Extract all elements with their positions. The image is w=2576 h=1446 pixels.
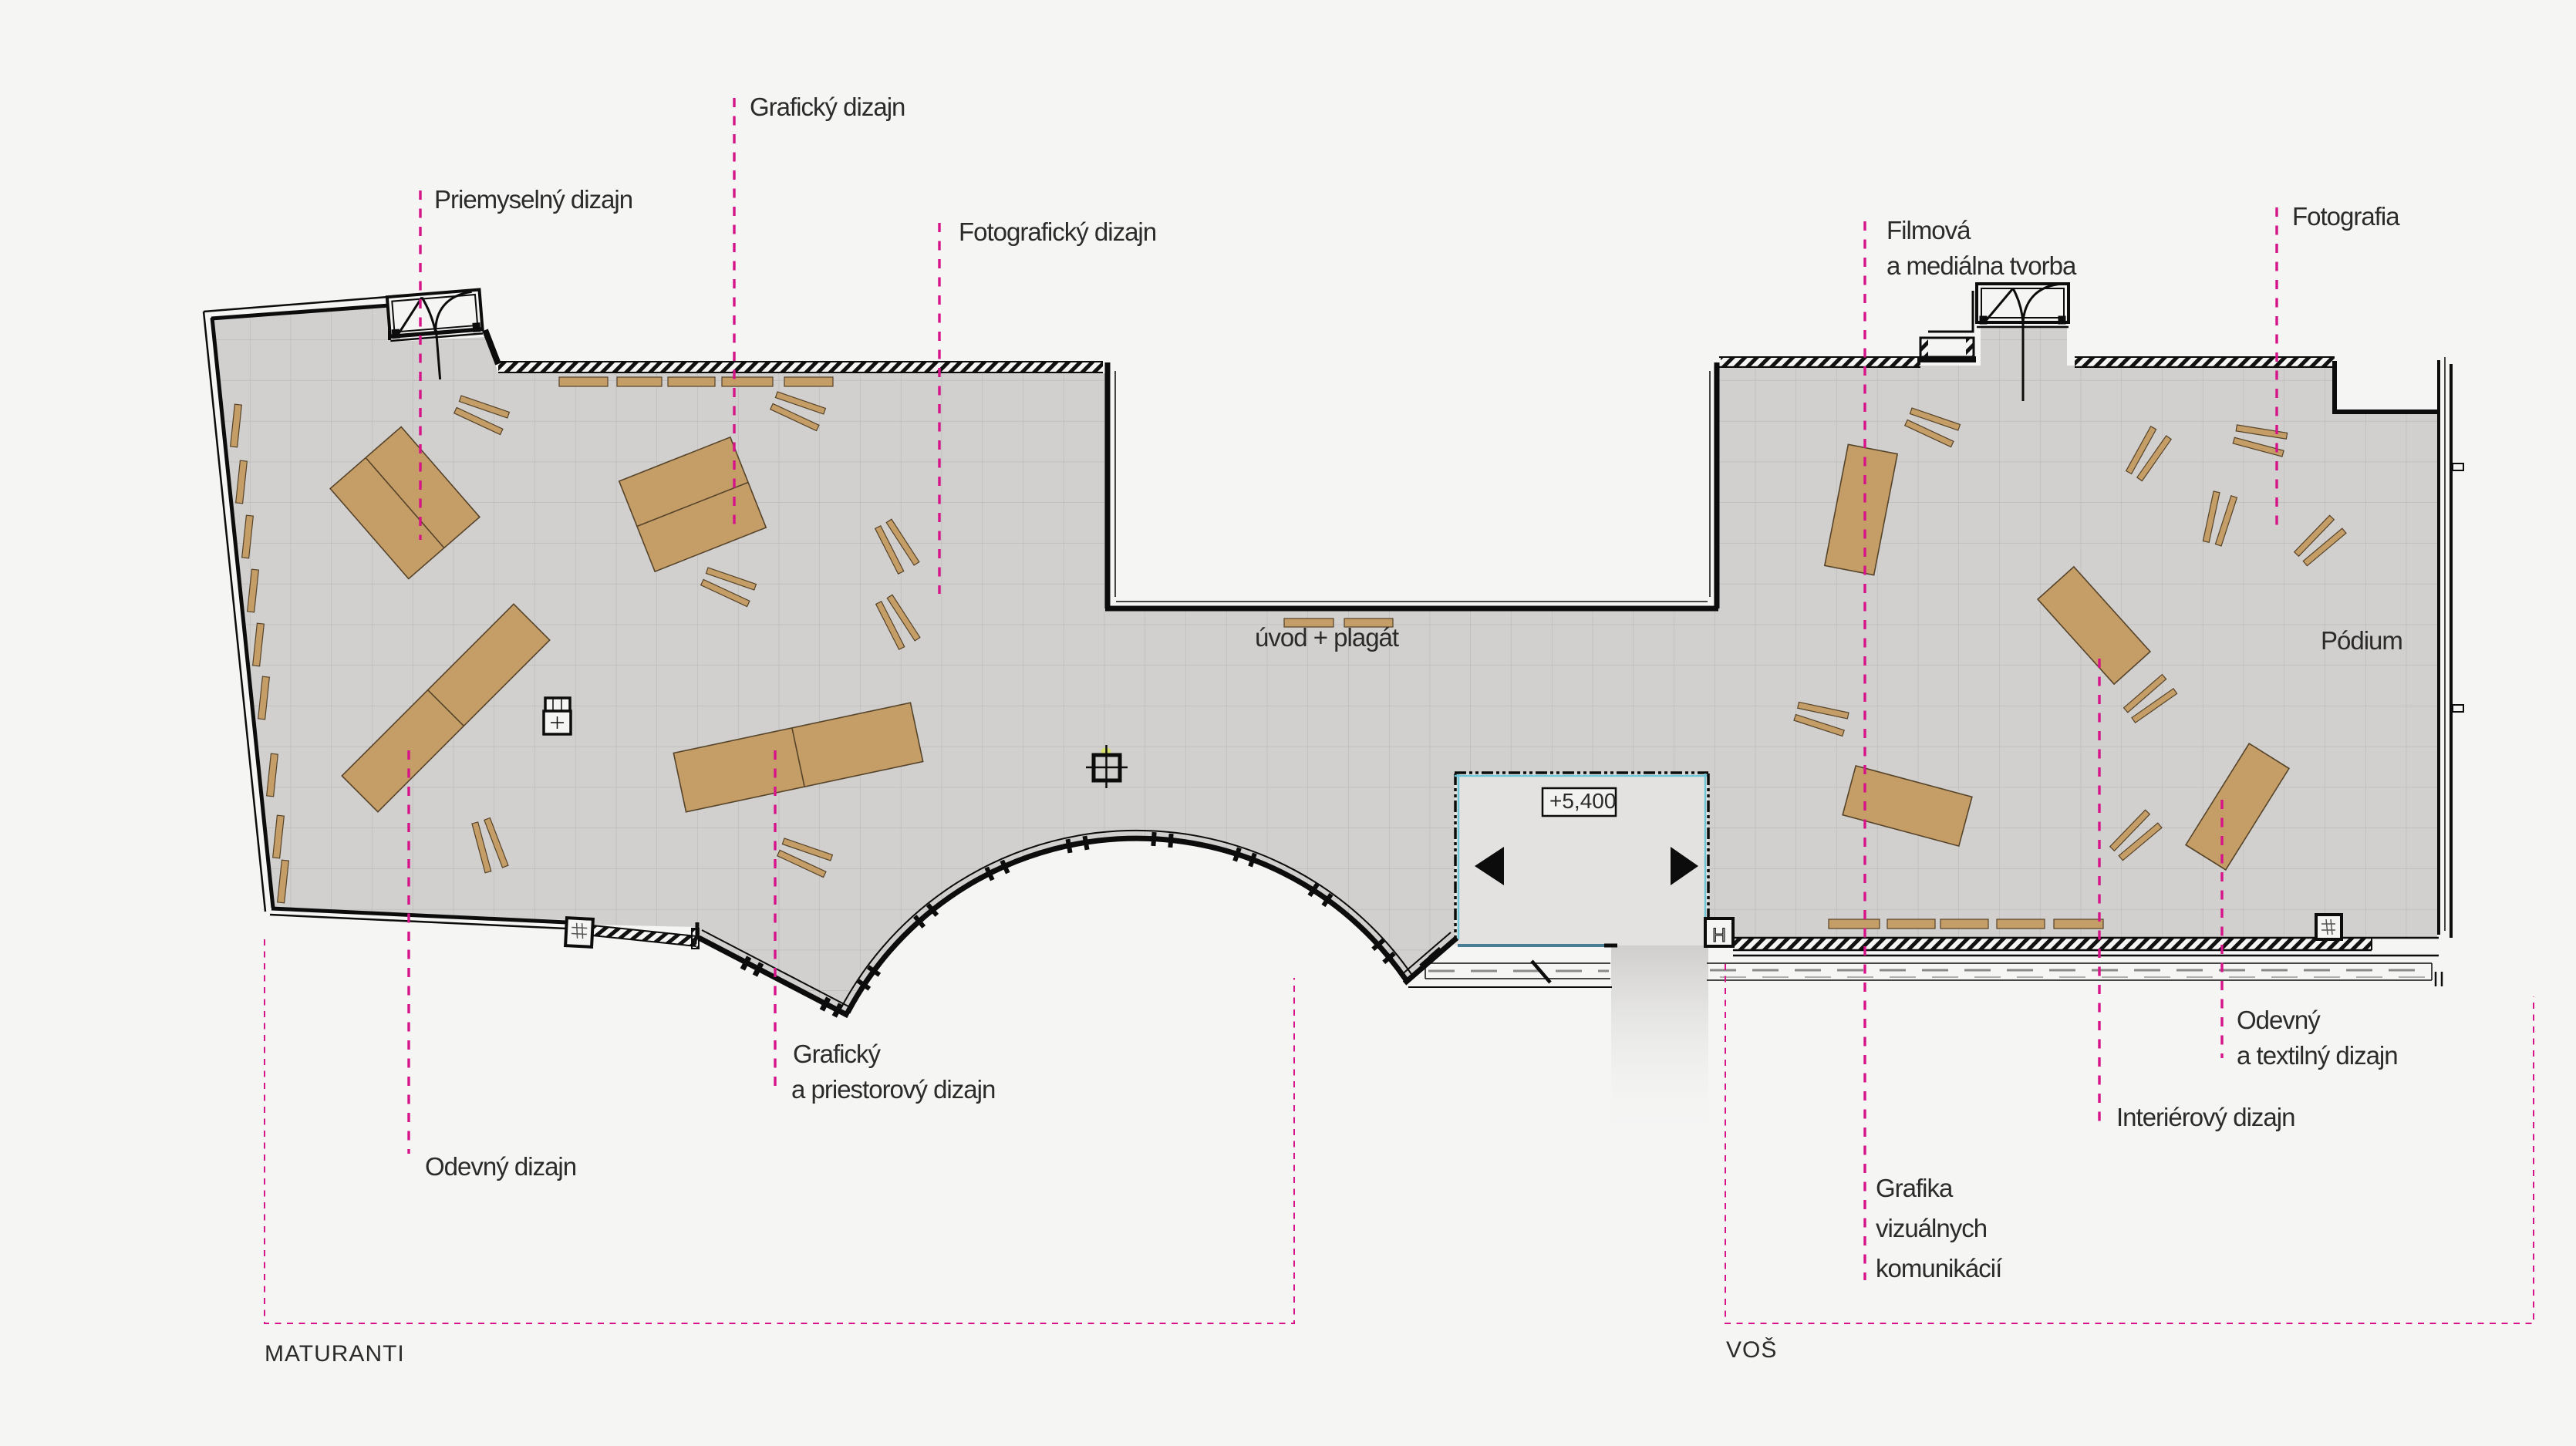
svg-text:a textilný dizajn: a textilný dizajn <box>2237 1041 2398 1070</box>
svg-text:Grafický: Grafický <box>793 1040 882 1068</box>
svg-text:Priemyselný dizajn: Priemyselný dizajn <box>434 185 632 214</box>
svg-text:Pódium: Pódium <box>2321 626 2402 655</box>
svg-text:Interiérový dizajn: Interiérový dizajn <box>2116 1103 2294 1131</box>
svg-text:úvod + plagát: úvod + plagát <box>1255 623 1399 652</box>
svg-text:VOŠ: VOŠ <box>1726 1336 1777 1363</box>
svg-text:Filmová: Filmová <box>1886 216 1971 244</box>
svg-text:+5,400: +5,400 <box>1549 789 1616 813</box>
svg-text:komunikácií: komunikácií <box>1876 1254 2002 1283</box>
svg-text:Odevný dizajn: Odevný dizajn <box>425 1152 576 1181</box>
svg-text:Grafický dizajn: Grafický dizajn <box>750 93 905 121</box>
svg-text:vizuálnych: vizuálnych <box>1876 1214 1987 1242</box>
svg-text:MATURANTI: MATURANTI <box>265 1341 405 1367</box>
svg-text:Fotografia: Fotografia <box>2292 202 2400 231</box>
svg-text:a priestorový dizajn: a priestorový dizajn <box>791 1075 995 1104</box>
svg-text:Odevný: Odevný <box>2237 1006 2321 1034</box>
svg-text:Grafika: Grafika <box>1876 1174 1954 1202</box>
svg-text:a mediálna tvorba: a mediálna tvorba <box>1886 251 2077 280</box>
svg-text:H: H <box>1712 925 1726 946</box>
svg-text:Fotografický dizajn: Fotografický dizajn <box>959 217 1156 246</box>
